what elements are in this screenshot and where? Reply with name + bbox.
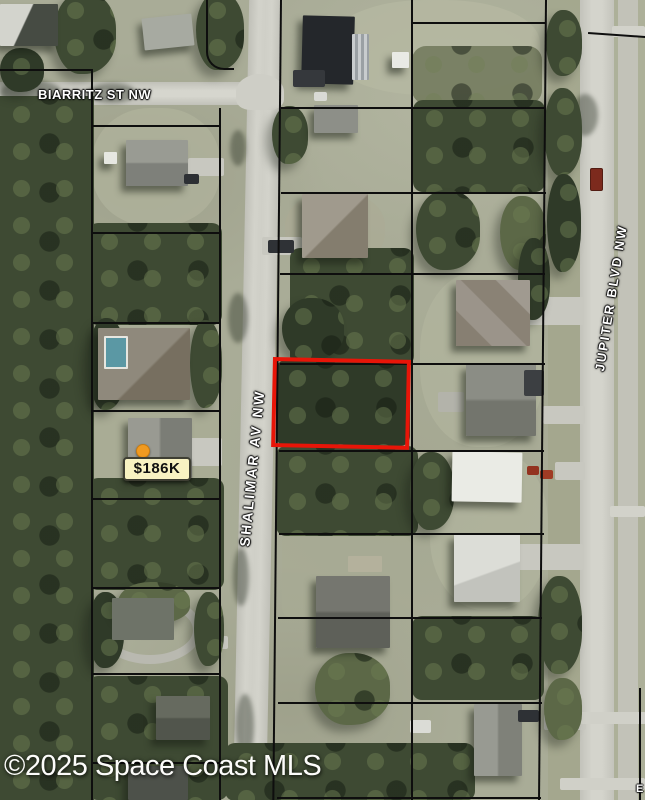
parcel-line (278, 702, 542, 704)
parcel-line (92, 410, 221, 412)
house-roof (126, 140, 188, 186)
driveway-apron (560, 778, 645, 790)
parcel-line (279, 533, 544, 535)
house-roof (316, 576, 390, 648)
parcel-line (411, 0, 413, 800)
parcel-line (92, 498, 221, 500)
car-on-jupiter (590, 168, 603, 191)
tree-canopy (538, 576, 582, 674)
tree-canopy (315, 653, 390, 725)
mls-aerial-photo: $186K BIARRITZ ST NW SHALIMAR AV NW JUPI… (0, 0, 645, 800)
parcel-line (279, 450, 544, 452)
debris (348, 556, 382, 572)
parcel-line (281, 192, 546, 194)
driveway (190, 438, 222, 466)
carport-roof (352, 34, 369, 80)
forest (0, 96, 94, 800)
tree-canopy (546, 10, 582, 76)
house-roof (452, 451, 523, 502)
parcel-line (219, 108, 221, 800)
tree-canopy (190, 320, 222, 408)
car (518, 710, 539, 722)
tree-canopy (88, 478, 224, 590)
parcel-line (92, 125, 221, 127)
parcel-line (0, 69, 92, 71)
price-marker-dot-icon (136, 444, 150, 458)
tree-canopy (272, 106, 308, 164)
intersection-flare (236, 74, 284, 110)
street-label-biarritz: BIARRITZ ST NW (38, 87, 151, 102)
price-label: $186K (123, 457, 191, 481)
tree-canopy (547, 174, 581, 272)
edge-street-label-fragment: E (636, 783, 643, 795)
tree-shadow (233, 548, 249, 606)
brush (412, 46, 542, 104)
parcel-line (92, 322, 221, 324)
jupiter-side-path (618, 0, 638, 800)
house-roof (454, 534, 520, 602)
house-roof (112, 598, 174, 640)
shed-roof (392, 52, 409, 68)
car (293, 70, 325, 87)
tree-canopy (54, 0, 116, 74)
parcel-line (281, 107, 546, 109)
house-roof (314, 105, 358, 133)
parcel-line (91, 69, 93, 800)
tree-shadow (228, 293, 248, 343)
parcel-line (278, 617, 542, 619)
car (410, 720, 431, 733)
house-roof (456, 280, 530, 346)
driveway-apron (610, 506, 645, 517)
house-roof (0, 4, 58, 46)
car (314, 92, 327, 101)
tree-canopy (412, 616, 544, 700)
parcel-line (92, 587, 221, 589)
parcel-line (412, 22, 546, 24)
mls-watermark: ©2025 Space Coast MLS (4, 750, 321, 783)
driveway (517, 544, 583, 570)
tree-shadow (230, 130, 246, 166)
parcel-line-corner (206, 0, 234, 70)
driveway (555, 462, 585, 480)
tree-canopy (413, 100, 545, 192)
pool (104, 336, 128, 369)
tree-canopy (416, 190, 480, 270)
car (527, 466, 539, 475)
house-roof (474, 704, 522, 776)
tree-canopy (88, 223, 222, 325)
parcel-line (280, 273, 545, 275)
shed-roof (104, 152, 117, 164)
car (268, 240, 294, 253)
house-roof (156, 696, 210, 740)
highlighted-parcel-outline (271, 357, 411, 450)
driveway (543, 406, 585, 424)
car (184, 174, 199, 184)
parking-pad (438, 392, 464, 412)
house-roof (141, 13, 194, 50)
tree-canopy (544, 88, 582, 176)
parcel-line (92, 673, 221, 675)
parcel-line (92, 232, 221, 234)
tree-canopy (410, 452, 454, 530)
tree-canopy (276, 446, 418, 536)
parcel-line (277, 797, 541, 799)
tree-canopy (544, 678, 582, 740)
house-roof (302, 194, 368, 258)
tree-canopy (282, 298, 344, 360)
